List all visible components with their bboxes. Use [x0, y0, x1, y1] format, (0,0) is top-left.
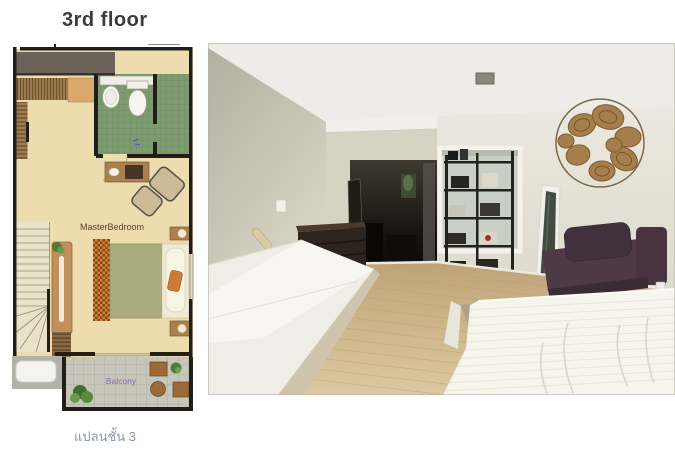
ac-unit [16, 361, 56, 382]
sofa-arm [636, 227, 667, 285]
sofa-cushion [563, 222, 632, 263]
bathroom [96, 74, 192, 156]
dresser-top [68, 78, 96, 102]
balcony-label: Balcony [106, 376, 137, 386]
staircase [17, 222, 51, 352]
plan-title: 3rd floor [62, 9, 148, 32]
stair-banister [52, 242, 72, 365]
nightstand-bottom [170, 321, 191, 336]
real-estate-listing-image: 3rd floor [0, 0, 675, 450]
mattress [443, 289, 675, 395]
balcony: Balcony [12, 356, 189, 407]
bedside-rug [93, 239, 110, 321]
closet-bar [15, 52, 115, 75]
bedroom-desk [105, 162, 149, 182]
floorplan-drawing: MasterBedroom [10, 44, 200, 422]
ceiling-vent [476, 73, 494, 84]
light-switch [276, 200, 286, 212]
room-photo [208, 43, 675, 395]
plan-caption: แปลนชั้น 3 [10, 426, 200, 447]
side-wardrobe [17, 102, 28, 159]
nightstand-top [170, 227, 191, 240]
bed-blanket [110, 244, 162, 318]
toilet-icon [127, 81, 148, 116]
corridor-door [423, 163, 435, 261]
master-bedroom-label: MasterBedroom [80, 222, 144, 232]
hanging-closet [15, 78, 68, 100]
